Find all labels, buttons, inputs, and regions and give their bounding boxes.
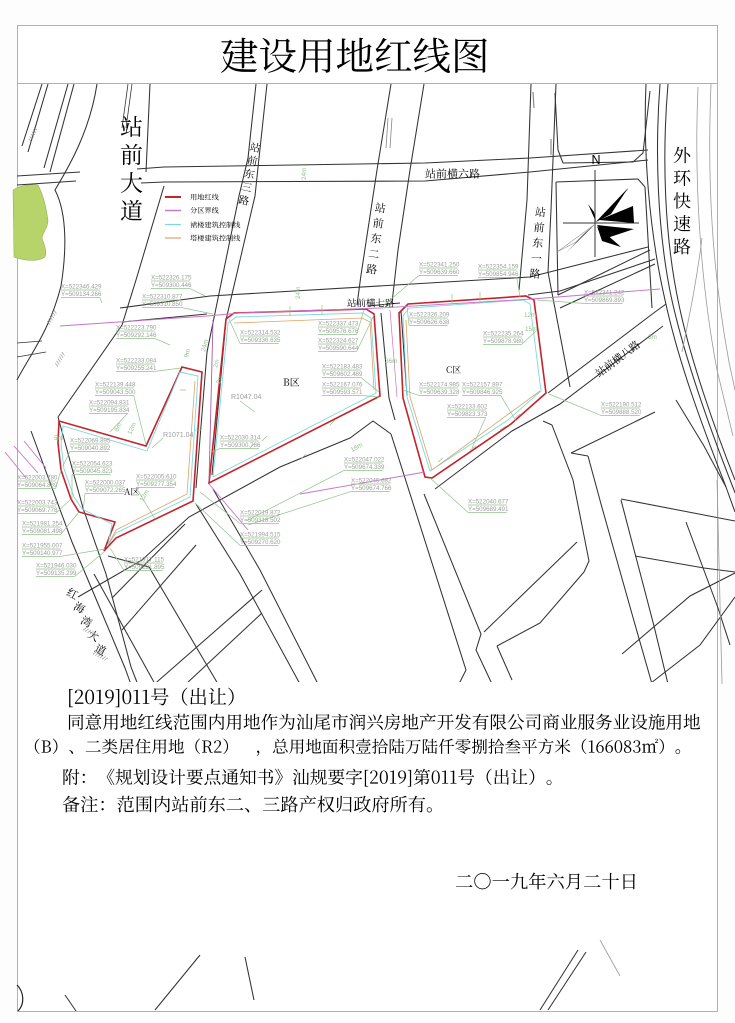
svg-text:Y=509639.660: Y=509639.660 bbox=[419, 269, 460, 276]
svg-text:R1071.04: R1071.04 bbox=[163, 432, 193, 439]
svg-text:Y=509135.299: Y=509135.299 bbox=[36, 570, 77, 577]
svg-text:X=521955.007: X=521955.007 bbox=[22, 543, 63, 550]
svg-text:X=522183.483: X=522183.483 bbox=[322, 364, 363, 371]
svg-text:X=522223.790: X=522223.790 bbox=[116, 325, 157, 332]
svg-text:X=522337.473: X=522337.473 bbox=[318, 321, 359, 328]
svg-text:X=522047.022: X=522047.022 bbox=[344, 457, 385, 464]
svg-text:X=522326.175: X=522326.175 bbox=[151, 275, 192, 282]
svg-text:X=521946.030: X=521946.030 bbox=[36, 563, 77, 570]
svg-text:Y=509590.644: Y=509590.644 bbox=[318, 345, 359, 352]
svg-text:X=521994.515: X=521994.515 bbox=[240, 532, 281, 539]
svg-text:X=522341.242: X=522341.242 bbox=[584, 290, 625, 297]
svg-text:Y=509121.895: Y=509121.895 bbox=[124, 564, 165, 571]
svg-text:X=522174.985: X=522174.985 bbox=[419, 382, 460, 389]
svg-text:X=522019.872: X=522019.872 bbox=[240, 510, 281, 517]
svg-text:X=522040.677: X=522040.677 bbox=[468, 499, 509, 506]
svg-text:X=522094.831: X=522094.831 bbox=[89, 400, 130, 407]
svg-text:Y=509045.823: Y=509045.823 bbox=[72, 468, 113, 475]
svg-text:X=522314.532: X=522314.532 bbox=[240, 330, 281, 337]
svg-text:X=522167.076: X=522167.076 bbox=[322, 382, 363, 389]
svg-text:X=522003.780: X=522003.780 bbox=[17, 475, 58, 482]
svg-text:X=522003.743: X=522003.743 bbox=[17, 500, 58, 507]
svg-text:X=522000.037: X=522000.037 bbox=[85, 480, 126, 487]
svg-text:3m: 3m bbox=[648, 334, 657, 341]
svg-text:Y=509134.266: Y=509134.266 bbox=[61, 291, 102, 298]
svg-text:Y=509310.850: Y=509310.850 bbox=[142, 301, 183, 308]
svg-text:Y=509081.498: Y=509081.498 bbox=[22, 528, 63, 535]
svg-text:X=522133.602: X=522133.602 bbox=[447, 404, 488, 411]
svg-text:X=522310.877: X=522310.877 bbox=[142, 294, 183, 301]
svg-text:X=522054.623: X=522054.623 bbox=[72, 461, 113, 468]
svg-text:Y=509300.446: Y=509300.446 bbox=[151, 282, 192, 289]
svg-text:Y=509270.620: Y=509270.620 bbox=[240, 539, 281, 546]
svg-text:Y=509069.778: Y=509069.778 bbox=[17, 507, 58, 514]
svg-text:Y=509040.892: Y=509040.892 bbox=[70, 445, 111, 452]
svg-text:Y=509639.328: Y=509639.328 bbox=[419, 389, 460, 396]
svg-text:Y=509854.946: Y=509854.946 bbox=[478, 271, 519, 278]
svg-text:Y=509674.339: Y=509674.339 bbox=[344, 464, 385, 471]
svg-text:X=522341.250: X=522341.250 bbox=[419, 262, 460, 269]
svg-text:Y=509140.977: Y=509140.977 bbox=[22, 550, 63, 557]
svg-text:Y=509593.571: Y=509593.571 bbox=[322, 389, 363, 396]
svg-text:Y=509674.766: Y=509674.766 bbox=[351, 485, 392, 492]
svg-text:5m: 5m bbox=[54, 435, 63, 442]
svg-text:Y=509255.241: Y=509255.241 bbox=[116, 365, 157, 372]
svg-text:Y=509626.638: Y=509626.638 bbox=[409, 319, 450, 326]
svg-text:Y=509878.980: Y=509878.980 bbox=[483, 338, 524, 345]
svg-text:R1047.04: R1047.04 bbox=[231, 394, 261, 401]
svg-text:Y=509846.925: Y=509846.925 bbox=[462, 389, 503, 396]
svg-text:X=522346.429: X=522346.429 bbox=[61, 284, 102, 291]
svg-text:X=522233.084: X=522233.084 bbox=[116, 358, 157, 365]
svg-text:X=522139.448: X=522139.448 bbox=[95, 382, 136, 389]
svg-text:X=522069.895: X=522069.895 bbox=[70, 438, 111, 445]
svg-text:Y=509869.893: Y=509869.893 bbox=[584, 297, 625, 304]
svg-text:X=522326.209: X=522326.209 bbox=[409, 312, 450, 319]
svg-text:Y=509072.265: Y=509072.265 bbox=[85, 487, 126, 494]
svg-text:24m: 24m bbox=[295, 287, 302, 299]
svg-text:X=522235.264: X=522235.264 bbox=[483, 331, 524, 338]
svg-text:Y=509195.834: Y=509195.834 bbox=[89, 407, 130, 414]
svg-text:36m: 36m bbox=[385, 358, 397, 365]
svg-text:Y=509277.354: Y=509277.354 bbox=[136, 481, 177, 488]
svg-text:X=522157.897: X=522157.897 bbox=[462, 382, 503, 389]
svg-text:24m: 24m bbox=[301, 168, 308, 180]
svg-text:N: N bbox=[591, 153, 600, 167]
svg-text:Y=509043.500: Y=509043.500 bbox=[95, 389, 136, 396]
svg-text:Y=509318.502: Y=509318.502 bbox=[240, 517, 281, 524]
svg-text:Y=509292.146: Y=509292.146 bbox=[116, 332, 157, 339]
svg-text:12m: 12m bbox=[524, 312, 536, 319]
svg-text:X=522354.159: X=522354.159 bbox=[478, 264, 519, 271]
svg-text:X=521917.115: X=521917.115 bbox=[124, 557, 165, 564]
svg-text:Y=509602.489: Y=509602.489 bbox=[322, 371, 363, 378]
svg-text:Y=509823.373: Y=509823.373 bbox=[447, 411, 488, 418]
svg-text:Y=509689.491: Y=509689.491 bbox=[468, 506, 509, 513]
svg-text:Y=509336.635: Y=509336.635 bbox=[240, 337, 281, 344]
svg-text:X=522005.610: X=522005.610 bbox=[136, 474, 177, 481]
svg-text:Y=509576.676: Y=509576.676 bbox=[318, 328, 359, 335]
svg-text:Y=509064.889: Y=509064.889 bbox=[17, 482, 58, 489]
svg-text:X=522190.512: X=522190.512 bbox=[601, 402, 642, 409]
svg-text:X=522045.682: X=522045.682 bbox=[351, 478, 392, 485]
svg-text:Y=509888.520: Y=509888.520 bbox=[601, 409, 642, 416]
svg-text:X=521981.254: X=521981.254 bbox=[22, 521, 63, 528]
svg-text:X=522324.627: X=522324.627 bbox=[318, 338, 359, 345]
svg-text:X=522030.314: X=522030.314 bbox=[220, 435, 261, 442]
svg-text:15m: 15m bbox=[525, 326, 537, 333]
